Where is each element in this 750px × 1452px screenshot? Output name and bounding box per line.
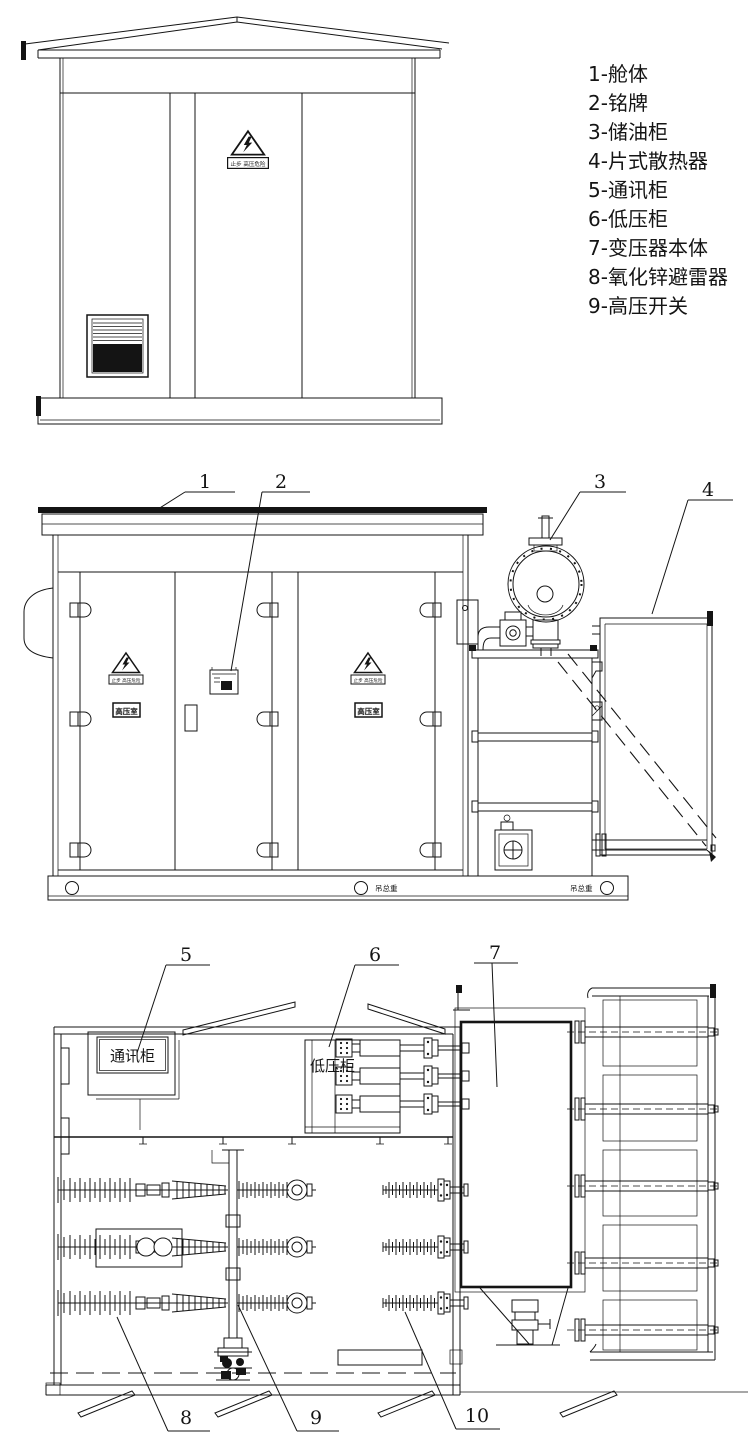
radiator-pipe [567,1252,721,1274]
callout-1: 1 [155,471,235,511]
plan-view: 5 6 7 通讯柜 低压柜 [46,942,748,1431]
callout-8: 8 [117,1317,210,1431]
leader-line [550,492,626,540]
hv-switch-insulator [237,1293,316,1313]
callout-number: 9 [310,1407,322,1429]
hv-compartment [50,1137,468,1380]
callout-number: 2 [275,471,287,493]
hv-bushing-insulator [383,1292,468,1314]
callout-6: 6 [329,944,399,1047]
legend-item: 1-舱体 [588,62,648,86]
hv-switch-insulator [237,1180,316,1200]
legend-item: 5-通讯柜 [588,178,668,202]
lv-cabinet: 低压柜 [305,1038,469,1133]
lv-bushing-row [336,1038,469,1058]
lifting-ear [24,588,53,658]
hidden-lines [558,654,716,846]
roof [21,17,449,60]
switch-mechanism [214,1338,252,1380]
radiator-side [558,611,716,862]
comm-cabinet-label: 通讯柜 [110,1047,155,1065]
legend-item: 6-低压柜 [588,207,668,231]
legend-item: 4-片式散热器 [588,149,708,173]
cable-tray [338,1350,422,1365]
comm-cabinet: 通讯柜 [88,1032,179,1130]
callout-number: 10 [465,1405,489,1427]
radiator-pipe [567,1319,721,1341]
lifting-point [601,882,614,895]
radiator-end-cap [707,611,713,626]
leader-line [329,965,399,1047]
radiator-pipe [567,1175,721,1197]
roof-vent-slat [368,1004,445,1034]
callout-number: 3 [594,471,606,493]
base-slat [560,1391,617,1417]
legend-item: 7-变压器本体 [588,236,708,260]
high-voltage-warning-icon [228,131,269,168]
transformer-body-plan [455,1008,585,1345]
radiator-plan [567,984,721,1360]
lifting-point [355,882,368,895]
callout-number: 5 [180,944,192,966]
callout-7: 7 [474,942,518,1087]
legend-item: 3-储油柜 [588,120,668,144]
hv-room-sign [113,703,140,717]
ventilation-grille [87,315,148,377]
substation-technical-drawing: 止步 高压危险 高压室 [0,0,750,1452]
hv-switch-insulator [237,1237,316,1257]
drawing-sheet: 止步 高压危险 高压室 [0,0,750,1452]
callout-number: 8 [180,1407,192,1429]
pan-valve [538,1319,550,1329]
door-hinge-icon [257,712,278,726]
front-elevation-view [21,17,449,424]
radiator-pipe [567,1021,721,1043]
roof-side [38,507,487,535]
callout-number: 1 [199,471,211,493]
lift-weight-label: 吊总重 [375,883,398,893]
hv-arrester-insulator [58,1177,228,1203]
base-end-cap [36,396,41,416]
callout-number: 7 [489,942,501,964]
leader-line [117,1317,210,1431]
base-frame [36,396,442,424]
leader-line [238,1305,339,1431]
callout-number: 4 [702,479,714,501]
legend: 1-舱体 2-铭牌 3-储油柜 4-片式散热器 5-通讯柜 6-低压柜 7-变压… [588,62,728,318]
leader-line [474,963,518,1087]
lv-bushing-row [336,1094,469,1114]
lv-bushing-row [336,1066,469,1086]
roof-vent-slat [183,1002,295,1035]
lifting-point [66,882,79,895]
legend-item: 2-铭牌 [588,91,648,115]
door-hinge-icon [420,603,441,617]
callout-3: 3 [550,471,626,540]
callout-9: 9 [238,1305,339,1431]
door-slot [185,705,197,731]
high-voltage-warning-icon [351,653,385,684]
lift-weight-label: 吊总重 [570,883,593,893]
callout-4: 4 [652,479,733,614]
high-voltage-warning-icon [109,653,143,684]
base-frame-side: 吊总重 吊总重 [48,876,628,900]
transformer-tank-side [469,645,602,876]
radiator-pipe [567,1098,721,1120]
side-elevation-view: 1 2 3 4 [24,471,733,900]
door-hinge-icon [257,603,278,617]
nameplate [210,667,238,694]
oil-gauge [537,586,553,602]
door-hinge-icon [257,843,278,857]
leader-line [652,500,733,614]
legend-item: 8-氧化锌避雷器 [588,265,728,289]
callout-number: 6 [369,944,381,966]
door-hinge-icon [420,843,441,857]
legend-item: 9-高压开关 [588,294,688,318]
roof-end-cap [21,41,26,60]
hv-room-sign [355,703,382,717]
oil-pan [480,1288,568,1345]
hv-arrester-insulator [58,1290,228,1316]
door-hinge-icon [420,712,441,726]
lv-cabinet-label: 低压柜 [310,1057,355,1075]
tank-valve-box [495,815,532,870]
